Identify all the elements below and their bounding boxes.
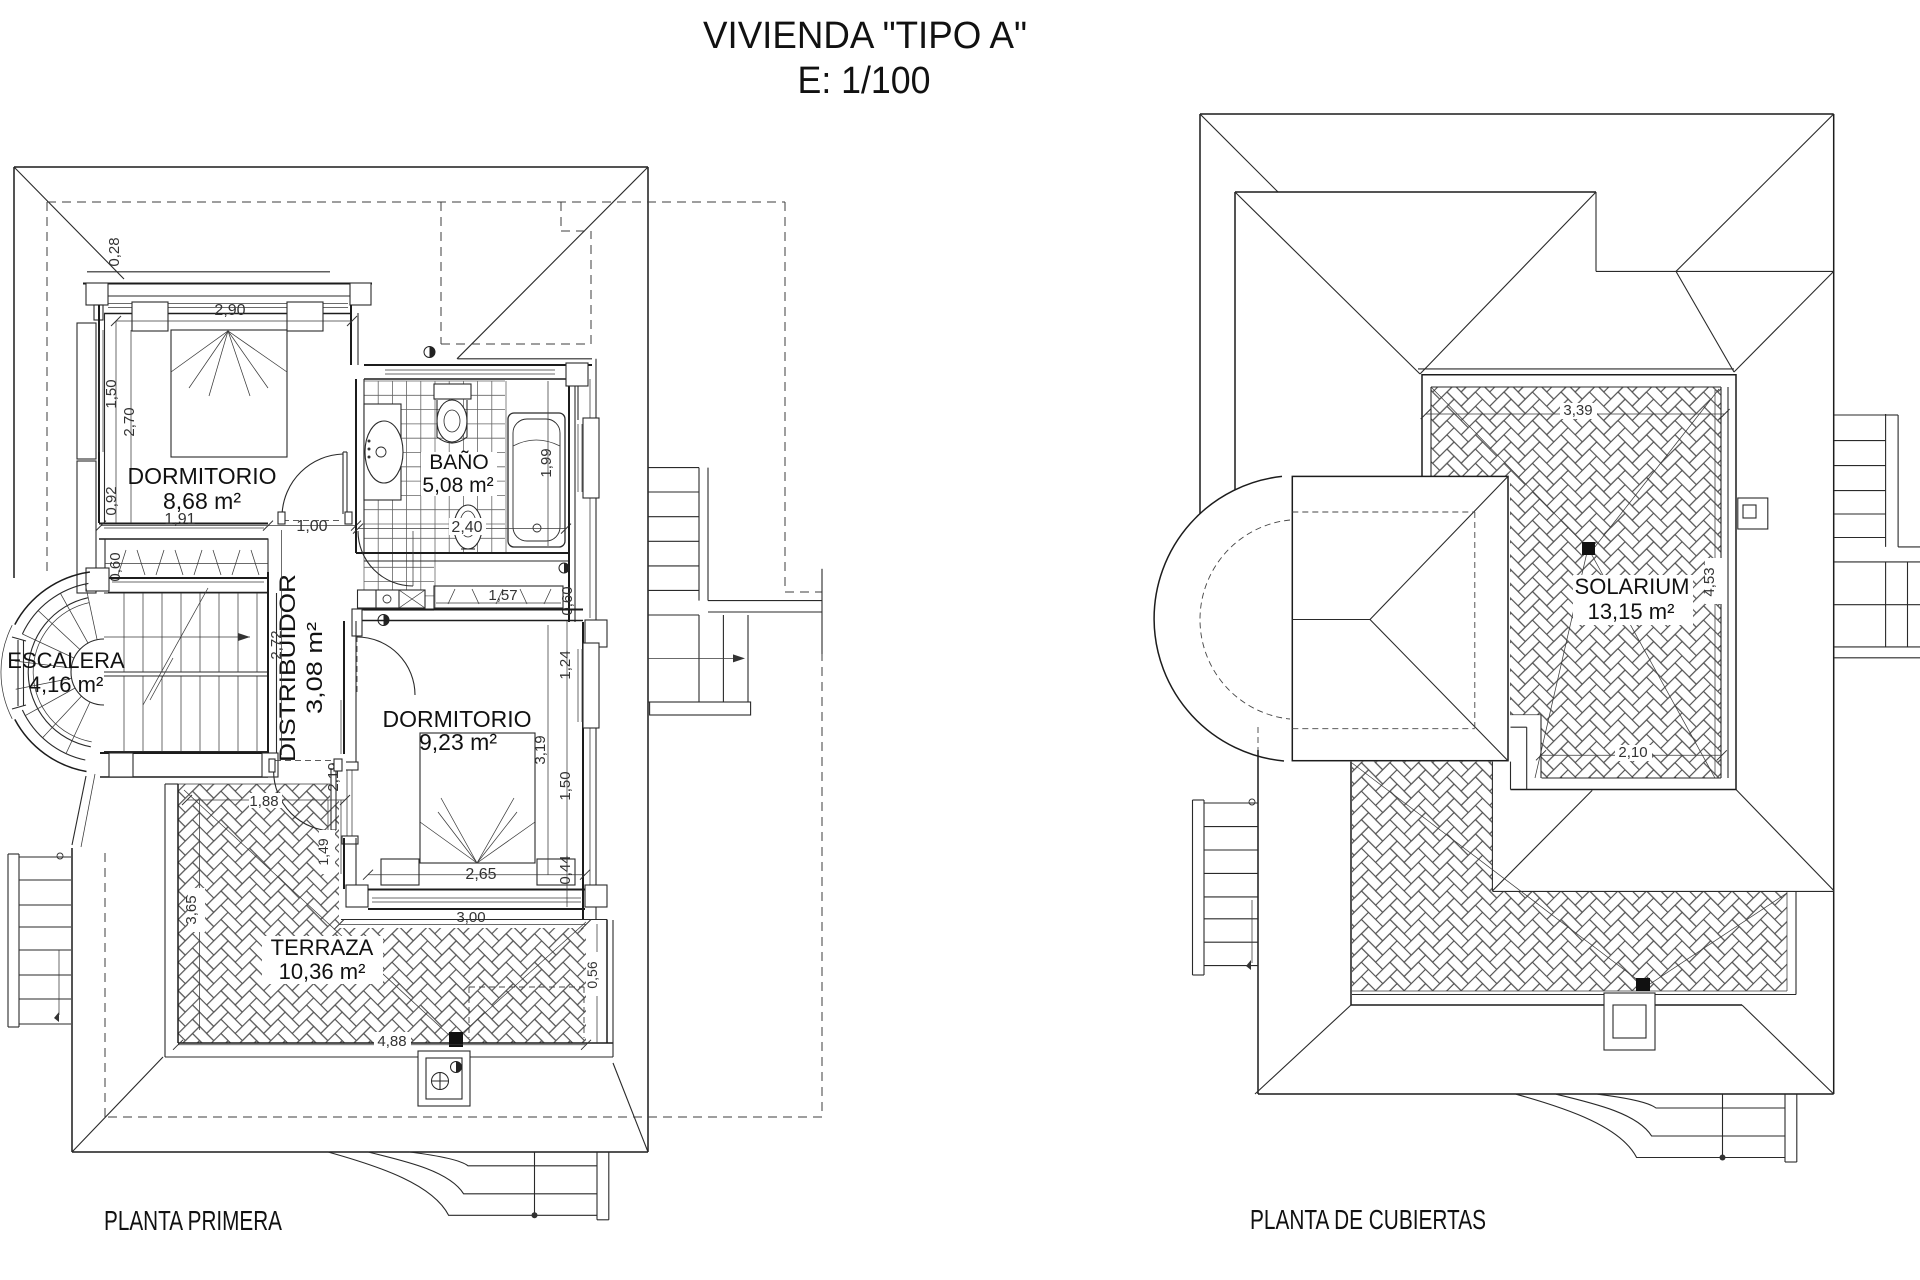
svg-text:2,70: 2,70	[121, 407, 138, 436]
svg-text:3,19: 3,19	[532, 735, 549, 764]
svg-text:13,15 m²: 13,15 m²	[1588, 599, 1675, 624]
svg-text:2,65: 2,65	[465, 866, 496, 883]
svg-text:1,50: 1,50	[103, 379, 120, 408]
svg-text:1,57: 1,57	[488, 587, 517, 604]
svg-text:TERRAZA: TERRAZA	[271, 935, 374, 960]
svg-text:0,44: 0,44	[557, 855, 574, 884]
svg-text:1,88: 1,88	[249, 793, 278, 810]
svg-text:2,72: 2,72	[268, 630, 285, 659]
svg-text:4,16 m²: 4,16 m²	[29, 672, 104, 697]
svg-text:DISTRIBUIDOR: DISTRIBUIDOR	[275, 574, 300, 762]
svg-text:2,40: 2,40	[451, 519, 482, 536]
svg-text:DORMITORIO: DORMITORIO	[127, 463, 276, 489]
svg-text:3,65: 3,65	[183, 895, 200, 924]
svg-text:1,49: 1,49	[315, 838, 331, 865]
svg-text:0,92: 0,92	[103, 486, 120, 515]
svg-text:3,00: 3,00	[456, 909, 485, 926]
svg-text:5,08 m²: 5,08 m²	[422, 474, 493, 497]
svg-text:0,60: 0,60	[559, 586, 576, 615]
svg-text:0,28: 0,28	[106, 237, 123, 266]
svg-text:2,90: 2,90	[214, 302, 245, 319]
svg-text:0,56: 0,56	[584, 961, 600, 988]
svg-text:3,39: 3,39	[1563, 402, 1592, 419]
svg-text:1,00: 1,00	[296, 518, 327, 535]
svg-text:10,36 m²: 10,36 m²	[279, 959, 366, 984]
svg-text:1,24: 1,24	[557, 650, 574, 679]
svg-text:4,88: 4,88	[377, 1033, 406, 1050]
svg-text:SOLARIUM: SOLARIUM	[1575, 574, 1690, 599]
svg-text:PLANTA PRIMERA: PLANTA PRIMERA	[104, 1205, 282, 1236]
svg-text:3,08 m²: 3,08 m²	[302, 622, 327, 714]
svg-text:VIVIENDA "TIPO A": VIVIENDA "TIPO A"	[703, 15, 1027, 57]
svg-text:4,53: 4,53	[1701, 567, 1718, 596]
svg-text:1,50: 1,50	[557, 771, 574, 800]
svg-text:8,68 m²: 8,68 m²	[163, 488, 241, 514]
svg-text:2,10: 2,10	[1618, 744, 1647, 761]
svg-text:BAÑO: BAÑO	[429, 450, 489, 474]
svg-text:9,23 m²: 9,23 m²	[419, 729, 497, 755]
svg-text:ESCALERA: ESCALERA	[7, 648, 125, 673]
svg-text:E: 1/100: E: 1/100	[798, 60, 931, 102]
svg-text:PLANTA DE CUBIERTAS: PLANTA DE CUBIERTAS	[1250, 1204, 1486, 1235]
svg-text:1,99: 1,99	[538, 448, 555, 477]
